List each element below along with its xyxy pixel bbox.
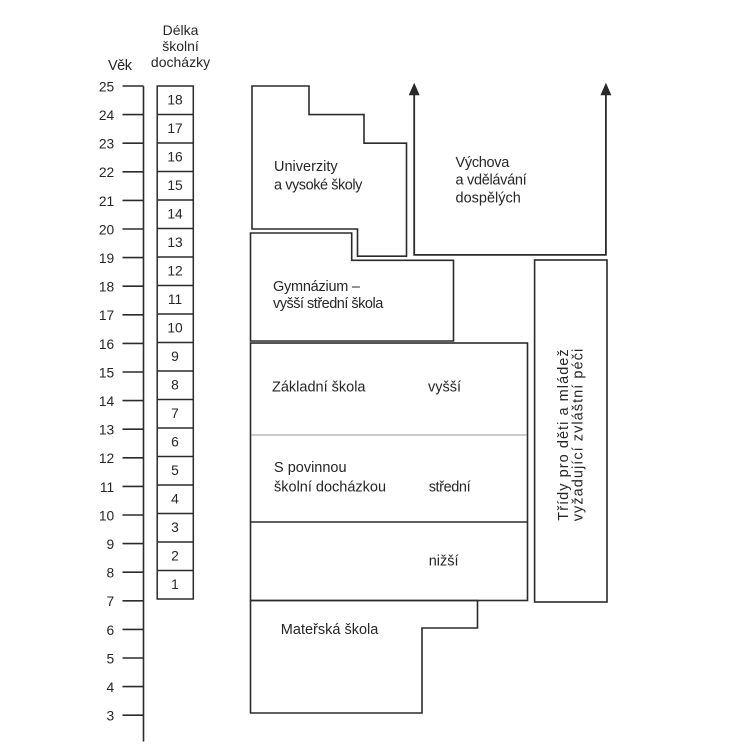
svg-text:18: 18 — [167, 92, 183, 107]
svg-text:a vysoké školy: a vysoké školy — [274, 178, 363, 194]
svg-text:vyžadující zvláštní péči: vyžadující zvláštní péči — [571, 348, 587, 522]
svg-text:24: 24 — [99, 108, 115, 123]
svg-text:15: 15 — [99, 365, 115, 380]
svg-text:6: 6 — [107, 623, 115, 638]
svg-text:17: 17 — [167, 121, 182, 136]
svg-text:a vdělávání: a vdělávání — [456, 172, 527, 188]
svg-text:13: 13 — [99, 423, 115, 438]
svg-text:S povinnou: S povinnou — [274, 460, 347, 476]
svg-text:12: 12 — [99, 451, 114, 466]
svg-text:11: 11 — [168, 292, 182, 307]
svg-text:4: 4 — [171, 491, 179, 506]
svg-text:16: 16 — [99, 337, 115, 352]
svg-text:7: 7 — [171, 406, 179, 421]
svg-text:Délka: Délka — [163, 22, 199, 38]
svg-text:Věk: Věk — [108, 58, 133, 74]
svg-text:1: 1 — [171, 577, 179, 592]
svg-text:Základní škola: Základní škola — [272, 380, 366, 396]
svg-text:Výchova: Výchova — [456, 155, 511, 171]
svg-text:školní docházkou: školní docházkou — [274, 479, 386, 495]
svg-text:střední: střední — [429, 479, 471, 495]
svg-text:18: 18 — [99, 280, 115, 295]
svg-text:22: 22 — [99, 165, 114, 180]
svg-text:Univerzity: Univerzity — [274, 159, 338, 175]
svg-text:17: 17 — [99, 308, 114, 323]
svg-text:14: 14 — [99, 394, 115, 409]
svg-text:4: 4 — [107, 680, 115, 695]
svg-text:10: 10 — [99, 508, 115, 523]
svg-text:5: 5 — [171, 463, 179, 478]
svg-text:10: 10 — [167, 320, 183, 335]
svg-text:21: 21 — [99, 194, 114, 209]
svg-text:5: 5 — [107, 651, 115, 666]
svg-text:nižší: nižší — [429, 553, 459, 569]
svg-text:9: 9 — [107, 537, 115, 552]
svg-text:8: 8 — [171, 377, 179, 392]
svg-text:vyšší střední škola: vyšší střední škola — [273, 296, 384, 312]
svg-text:2: 2 — [171, 548, 179, 563]
svg-text:3: 3 — [107, 709, 115, 724]
svg-text:dospělých: dospělých — [456, 191, 521, 207]
svg-text:12: 12 — [167, 263, 182, 278]
svg-text:docházky: docházky — [151, 54, 210, 70]
svg-text:školní: školní — [162, 38, 199, 54]
svg-text:16: 16 — [167, 149, 183, 164]
svg-text:15: 15 — [167, 178, 183, 193]
svg-text:11: 11 — [100, 480, 114, 495]
svg-text:23: 23 — [99, 137, 115, 152]
svg-text:20: 20 — [99, 222, 115, 237]
svg-text:Mateřská škola: Mateřská škola — [281, 622, 379, 638]
svg-text:13: 13 — [167, 235, 183, 250]
svg-text:6: 6 — [171, 434, 179, 449]
svg-text:7: 7 — [107, 594, 115, 609]
svg-text:3: 3 — [171, 520, 179, 535]
svg-text:8: 8 — [107, 566, 115, 581]
svg-text:25: 25 — [99, 79, 115, 94]
svg-text:9: 9 — [171, 349, 179, 364]
svg-text:14: 14 — [167, 206, 183, 221]
svg-text:vyšší: vyšší — [428, 380, 461, 396]
svg-text:Gymnázium –: Gymnázium – — [273, 279, 361, 295]
svg-text:19: 19 — [99, 251, 115, 266]
